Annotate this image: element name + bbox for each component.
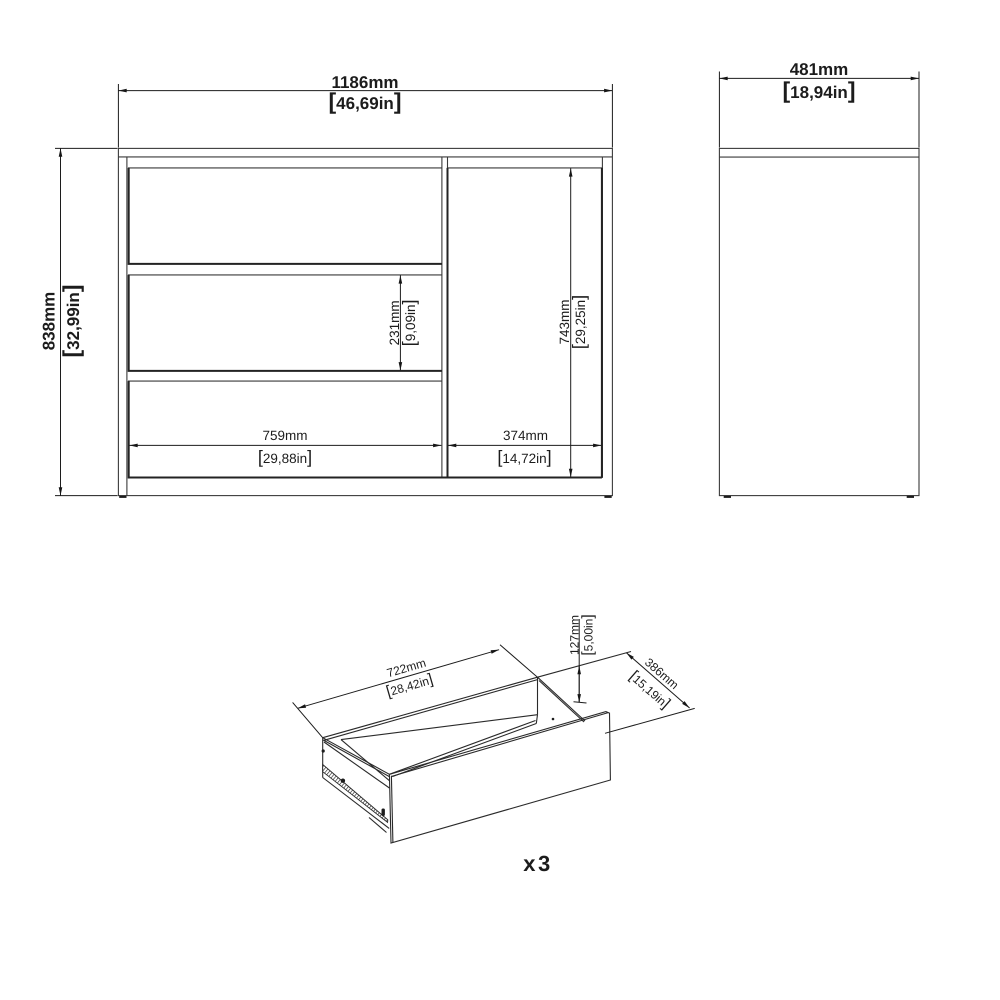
svg-text:[18,94in]: [18,94in] — [783, 77, 856, 103]
svg-text:374mm: 374mm — [503, 428, 548, 443]
svg-text:[14,72in]: [14,72in] — [497, 447, 551, 467]
svg-text:838mm: 838mm — [40, 292, 59, 351]
svg-text:x3: x3 — [523, 851, 552, 876]
svg-text:127mm: 127mm — [568, 615, 582, 655]
svg-text:[5,00in]: [5,00in] — [580, 614, 597, 655]
svg-text:743mm: 743mm — [557, 299, 572, 344]
svg-text:[32,99in]: [32,99in] — [58, 285, 84, 358]
svg-text:481mm: 481mm — [790, 60, 849, 79]
svg-text:1186mm: 1186mm — [331, 73, 398, 92]
svg-text:759mm: 759mm — [262, 428, 307, 443]
svg-text:[29,25in]: [29,25in] — [569, 295, 589, 349]
svg-text:231mm: 231mm — [387, 300, 402, 345]
svg-text:[29,88in]: [29,88in] — [258, 447, 312, 467]
